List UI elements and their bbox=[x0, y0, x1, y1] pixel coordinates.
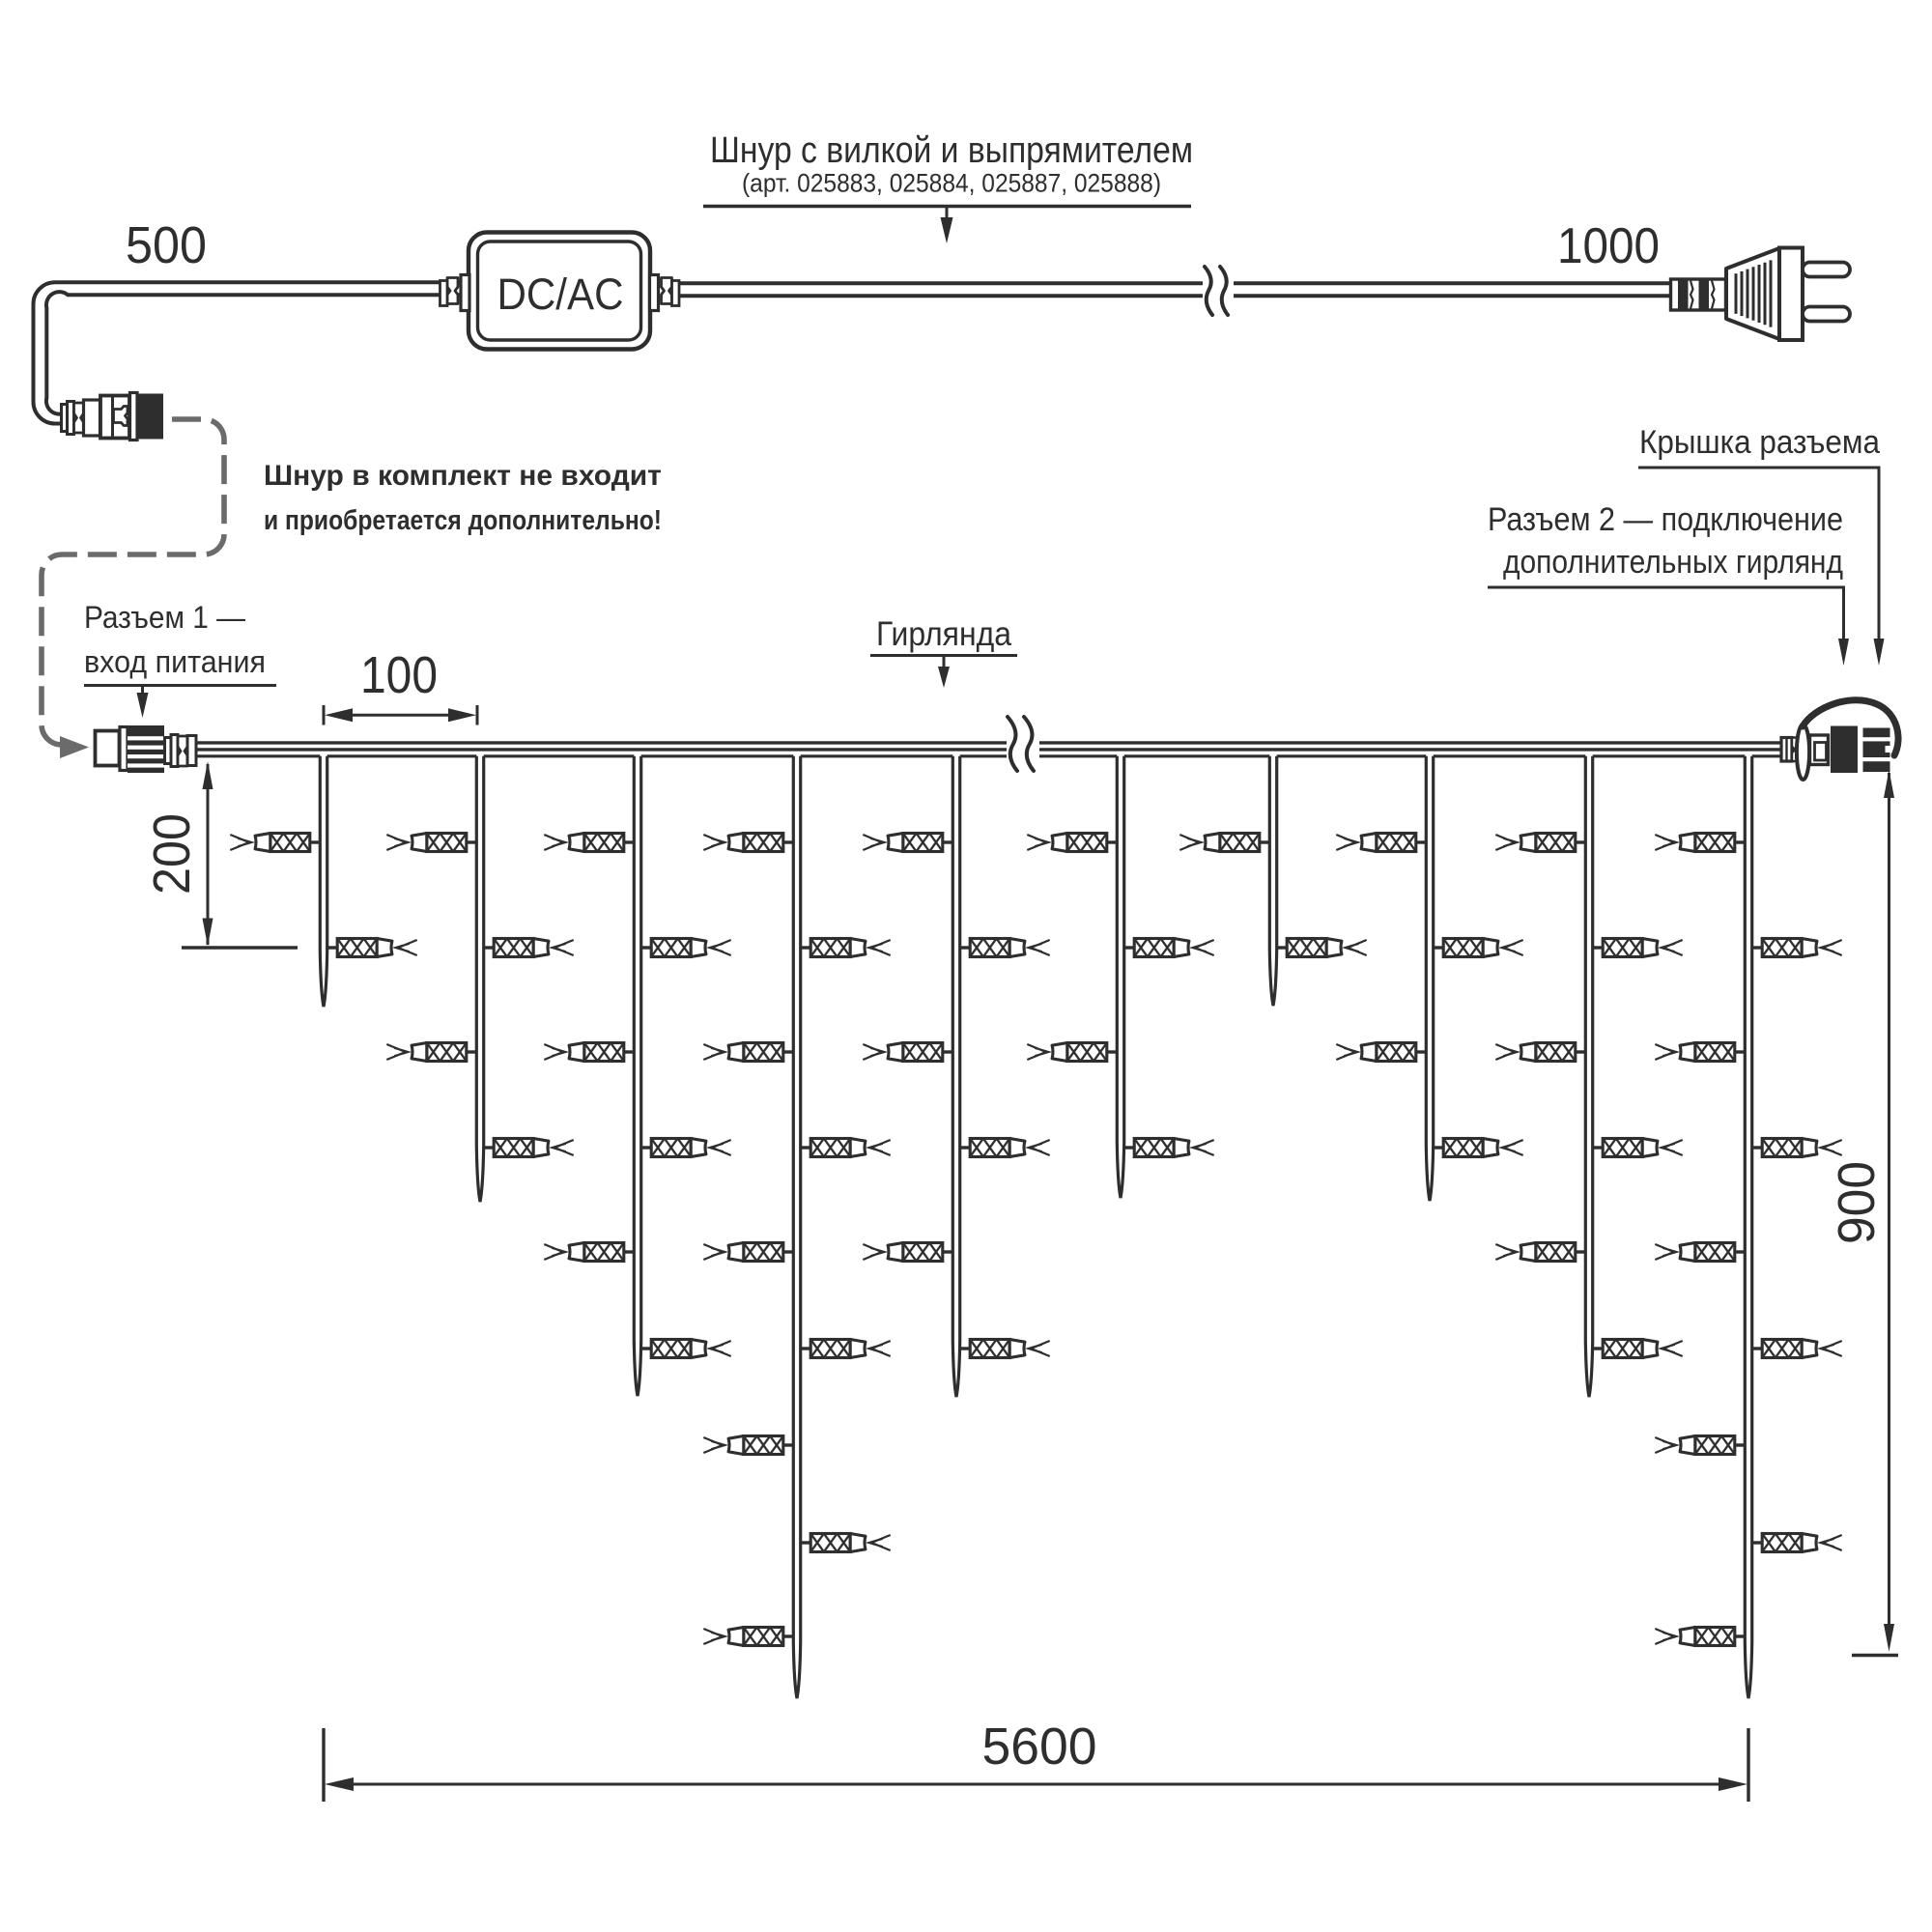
svg-text:(арт. 025883, 025884, 025887,: (арт. 025883, 025884, 025887, 025888) bbox=[742, 169, 1161, 198]
svg-text:1000: 1000 bbox=[1557, 218, 1660, 274]
svg-text:200: 200 bbox=[143, 813, 201, 895]
svg-text:DC/AC: DC/AC bbox=[497, 270, 624, 319]
svg-text:Крышка разъема: Крышка разъема bbox=[1639, 424, 1881, 461]
svg-text:Разъем 1 —: Разъем 1 — bbox=[84, 600, 245, 635]
svg-text:500: 500 bbox=[126, 216, 207, 274]
svg-text:5600: 5600 bbox=[982, 1718, 1097, 1776]
svg-text:900: 900 bbox=[1828, 1161, 1886, 1244]
svg-text:Разъем 2 — подключение: Разъем 2 — подключение bbox=[1488, 501, 1843, 538]
svg-text:Шнур с вилкой и выпрямителем: Шнур с вилкой и выпрямителем bbox=[710, 130, 1193, 171]
svg-text:Шнур в комплект не входит: Шнур в комплект не входит bbox=[264, 460, 662, 492]
svg-text:и приобретается дополнительно!: и приобретается дополнительно! bbox=[264, 505, 662, 536]
svg-text:Гирлянда: Гирлянда bbox=[876, 615, 1011, 653]
svg-text:100: 100 bbox=[360, 646, 438, 704]
svg-text:вход питания: вход питания bbox=[84, 644, 266, 679]
svg-text:дополнительных гирлянд: дополнительных гирлянд bbox=[1503, 544, 1843, 581]
